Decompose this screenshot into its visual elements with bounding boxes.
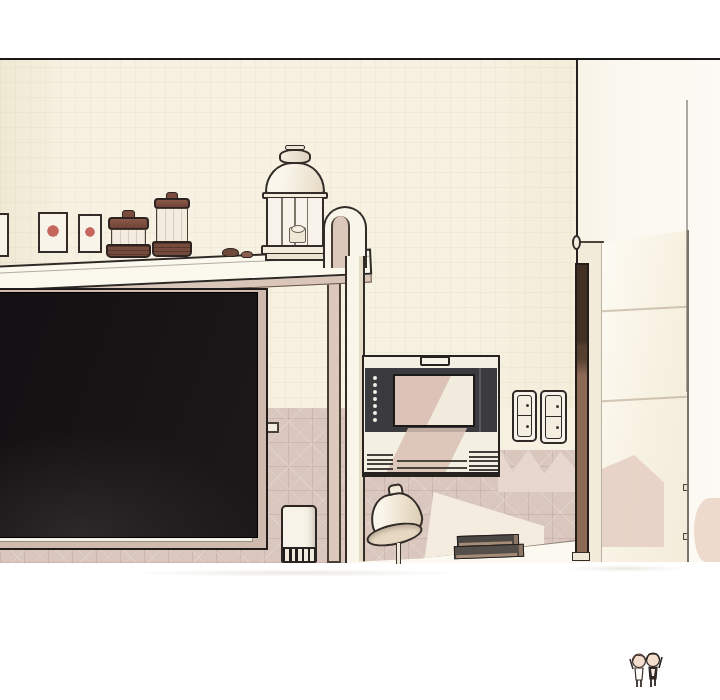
spice-jar-tall — [152, 192, 192, 258]
spice-jar-short — [106, 210, 152, 258]
screen-shadow — [393, 374, 452, 427]
switch-button — [518, 396, 531, 416]
door-frame-foot — [572, 552, 590, 561]
tv-frame — [0, 288, 268, 550]
mascot-legs — [637, 680, 641, 687]
lamp-stem — [396, 543, 401, 564]
box-label-dot — [47, 225, 59, 237]
book-stack — [452, 533, 528, 563]
jar-body — [156, 208, 188, 242]
vent-grille — [367, 454, 393, 471]
switch-button — [546, 396, 561, 417]
candle-lantern — [261, 145, 329, 262]
mascot-body — [635, 668, 643, 680]
chibi-mascot-figures — [628, 642, 664, 690]
monitor-button — [373, 383, 377, 387]
lantern-candle — [289, 227, 306, 243]
monitor-button — [373, 404, 377, 408]
light-switch-plate — [540, 390, 567, 444]
lantern-dome — [265, 162, 325, 194]
jar-base — [152, 241, 192, 257]
corner-shadow — [694, 498, 720, 562]
floor-shadow — [545, 564, 705, 573]
door-groove — [602, 396, 687, 402]
canister-slats — [283, 547, 315, 561]
switch-button — [546, 417, 561, 438]
scene-panel — [0, 58, 720, 565]
jar-body — [111, 229, 146, 245]
panel-seam — [479, 368, 481, 432]
door-edge-line — [686, 100, 688, 392]
wall-corner-right — [578, 60, 720, 562]
desk-lamp — [368, 484, 426, 564]
mascot-legs — [651, 679, 655, 687]
device-shadow — [384, 428, 467, 477]
door-frame-wood — [575, 263, 589, 559]
light-switch-plate — [512, 390, 537, 442]
storage-box — [38, 212, 68, 253]
door-hinge — [572, 235, 581, 250]
wall-monitor — [362, 355, 500, 477]
switch-button — [518, 416, 531, 436]
switch-rocker — [545, 395, 562, 439]
door-handle — [687, 468, 689, 556]
monitor-front-panel — [365, 368, 497, 432]
shelf-item-edge-box — [0, 213, 9, 257]
monitor-button — [373, 418, 377, 422]
monitor-top-latch — [420, 356, 450, 366]
door-groove — [602, 306, 687, 312]
canister — [281, 505, 317, 563]
door-shadow — [602, 455, 664, 547]
tv-screen — [0, 292, 258, 538]
monitor-button — [373, 390, 377, 394]
monitor-button — [373, 376, 377, 380]
device-groove — [397, 460, 467, 469]
book — [454, 544, 524, 559]
box-label-dot — [85, 227, 95, 237]
lantern-glass — [266, 198, 324, 246]
floor-shadow — [70, 568, 520, 578]
pebble — [222, 248, 239, 257]
illustration-canvas — [0, 0, 720, 700]
pebble — [241, 251, 253, 258]
switch-rocker — [517, 395, 532, 437]
device-bottom-edge — [364, 472, 498, 475]
monitor-button — [373, 397, 377, 401]
lantern-base-lower — [265, 254, 325, 261]
jar-base — [106, 244, 151, 258]
shelf-back-leg — [327, 256, 341, 563]
door-panel — [601, 230, 689, 562]
monitor-screen — [393, 374, 475, 427]
vent-grille — [469, 451, 498, 471]
monitor-button — [373, 411, 377, 415]
storage-box — [78, 214, 102, 253]
